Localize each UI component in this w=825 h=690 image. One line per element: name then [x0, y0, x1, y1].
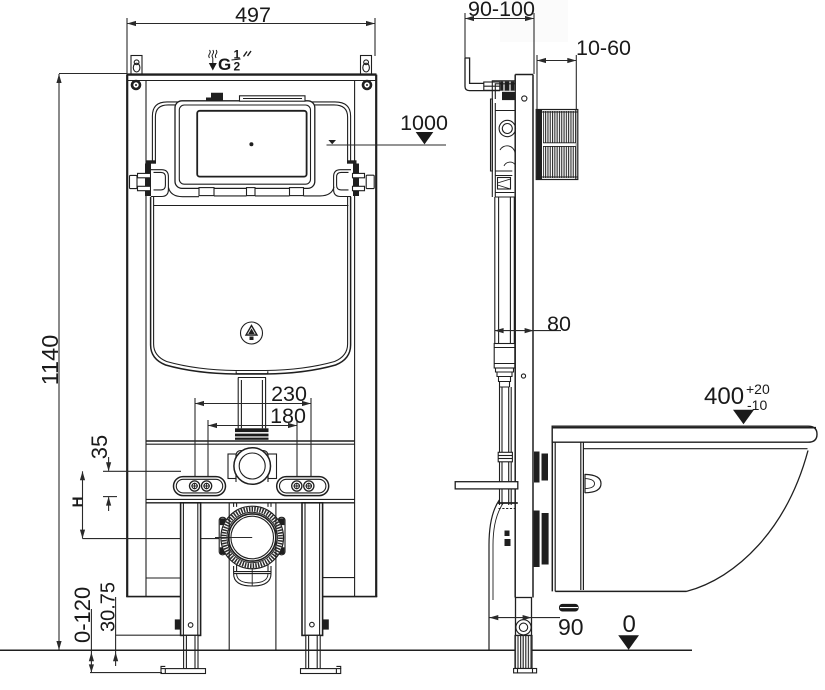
svg-text:90: 90	[558, 614, 584, 640]
svg-text:35: 35	[87, 435, 112, 459]
svg-text:0-120: 0-120	[70, 587, 95, 643]
svg-text:1140: 1140	[37, 335, 63, 386]
svg-text:2: 2	[234, 60, 241, 74]
svg-text:H: H	[70, 497, 87, 508]
svg-text:400: 400	[704, 383, 744, 410]
svg-text:30.75: 30.75	[98, 582, 120, 632]
svg-text:G: G	[218, 55, 231, 74]
svg-text:90-100: 90-100	[468, 0, 535, 21]
svg-text:230: 230	[271, 382, 307, 406]
svg-text:+20: +20	[746, 381, 770, 397]
svg-text:80: 80	[547, 312, 571, 336]
svg-text:0: 0	[623, 611, 636, 638]
svg-text:1000: 1000	[400, 111, 448, 135]
svg-text:180: 180	[270, 404, 306, 428]
svg-text:497: 497	[235, 3, 271, 27]
svg-text:10-60: 10-60	[576, 36, 631, 60]
